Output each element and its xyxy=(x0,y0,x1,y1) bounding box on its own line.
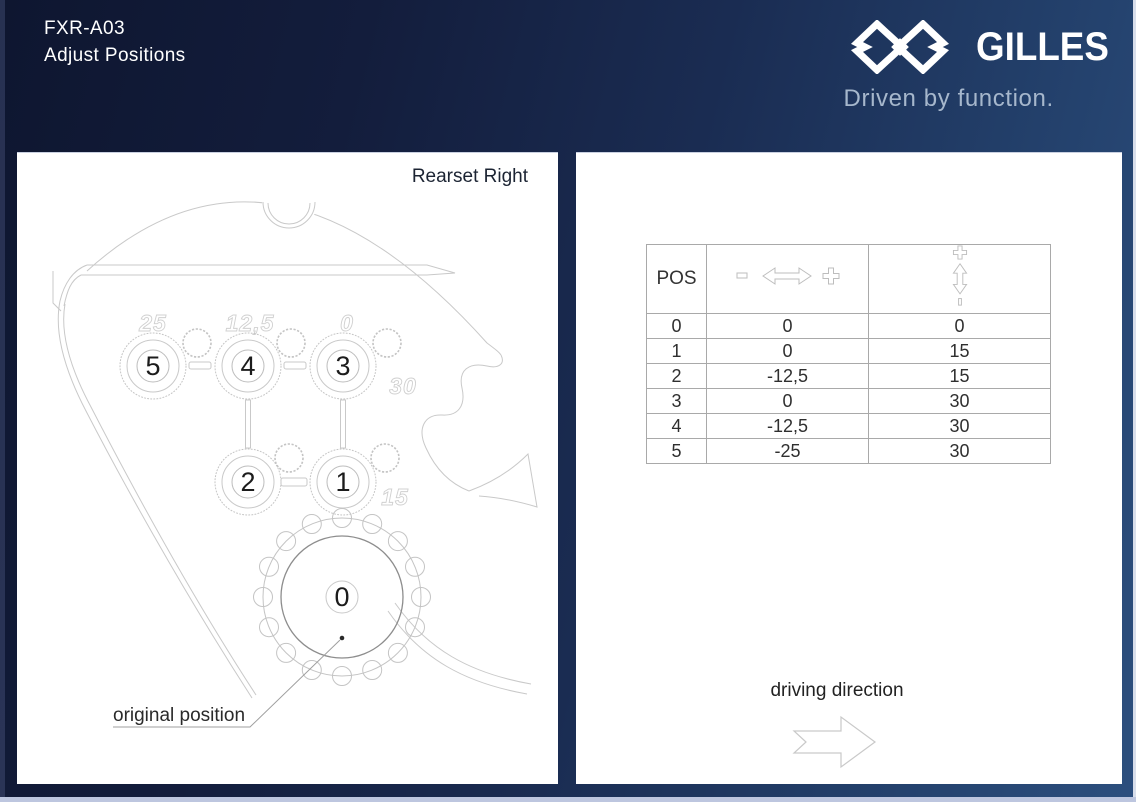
left-edge-stripe xyxy=(0,0,5,802)
engraved-15: 15 xyxy=(381,484,409,510)
table-row-pos5: 5 -25 30 xyxy=(647,439,1051,464)
knurled-pins xyxy=(183,329,401,472)
pos-cell: 3 xyxy=(647,389,707,414)
table-row-pos0: 0 0 0 xyxy=(647,314,1051,339)
adjuster-hole-3: 3 xyxy=(310,333,376,399)
pos-cell: 0 xyxy=(647,314,707,339)
horizontal-value-cell: 0 xyxy=(707,339,869,364)
hole-label-5: 5 xyxy=(145,351,160,381)
brand-block: GILLES Driven by function. xyxy=(844,20,1120,113)
table-row-pos4: 4 -12,5 30 xyxy=(647,414,1051,439)
horizontal-value-cell: -25 xyxy=(707,439,869,464)
horizontal-value-cell: -12,5 xyxy=(707,364,869,389)
pos-header-cell: POS xyxy=(647,245,707,314)
adjuster-hole-1: 1 xyxy=(310,449,376,515)
pos-cell: 4 xyxy=(647,414,707,439)
rearset-plate-outline xyxy=(53,178,537,698)
adjuster-hole-2: 2 xyxy=(215,449,281,515)
rearset-drawing: 25 12,5 0 30 15 xyxy=(17,153,558,784)
engraved-25: 25 xyxy=(138,310,167,336)
vertical-value-cell: 0 xyxy=(869,314,1051,339)
engraved-12-5: 12,5 xyxy=(226,310,275,336)
horizontal-offset-arrow-icon xyxy=(723,263,853,289)
table-row-pos1: 1 0 15 xyxy=(647,339,1051,364)
adjuster-holes: 5 4 3 2 xyxy=(120,333,376,515)
gilles-interlocked-diamonds-icon xyxy=(844,20,966,74)
hole-label-4: 4 xyxy=(240,351,255,381)
hole-label-1: 1 xyxy=(335,467,350,497)
hole-label-3: 3 xyxy=(335,351,350,381)
vertical-value-cell: 15 xyxy=(869,339,1051,364)
positions-table: POS xyxy=(646,244,1051,464)
adjuster-hole-4: 4 xyxy=(215,333,281,399)
horizontal-value-cell: 0 xyxy=(707,389,869,414)
original-position-label: original position xyxy=(113,705,245,726)
brand-tagline: Driven by function. xyxy=(844,85,1054,113)
pos-cell: 5 xyxy=(647,439,707,464)
vertical-offset-arrow-icon xyxy=(945,245,975,307)
adjuster-wheel: 0 xyxy=(254,509,431,686)
document-page: FXR-A03 Adjust Positions GILLES Driven b… xyxy=(0,0,1136,802)
vertical-value-cell: 15 xyxy=(869,364,1051,389)
wheel-label-0: 0 xyxy=(334,582,349,612)
model-code: FXR-A03 xyxy=(44,15,186,42)
horizontal-value-cell: 0 xyxy=(707,314,869,339)
table-row-pos3: 3 0 30 xyxy=(647,389,1051,414)
drawing-panel: Rearset Right 25 xyxy=(17,152,558,784)
vertical-offset-header-cell xyxy=(869,245,1051,314)
vertical-value-cell: 30 xyxy=(869,439,1051,464)
horizontal-value-cell: -12,5 xyxy=(707,414,869,439)
table-panel: POS xyxy=(576,152,1122,784)
brand-row: GILLES xyxy=(844,20,1120,74)
engraved-0: 0 xyxy=(340,310,354,336)
pos-cell: 2 xyxy=(647,364,707,389)
pos-cell: 1 xyxy=(647,339,707,364)
document-title: FXR-A03 Adjust Positions xyxy=(44,15,186,69)
bottom-edge-stripe xyxy=(0,797,1136,802)
vertical-value-cell: 30 xyxy=(869,389,1051,414)
right-arrow-icon xyxy=(791,715,887,769)
engraved-30: 30 xyxy=(389,373,417,399)
hole-label-2: 2 xyxy=(240,467,255,497)
adjuster-hole-5: 5 xyxy=(120,333,186,399)
table-row-pos2: 2 -12,5 15 xyxy=(647,364,1051,389)
table-header-row: POS xyxy=(647,245,1051,314)
original-position-dot xyxy=(340,636,345,641)
horizontal-offset-header-cell xyxy=(707,245,869,314)
brand-name: GILLES xyxy=(976,25,1109,70)
vertical-value-cell: 30 xyxy=(869,414,1051,439)
document-subtitle: Adjust Positions xyxy=(44,42,186,69)
driving-direction-label: driving direction xyxy=(726,680,948,702)
